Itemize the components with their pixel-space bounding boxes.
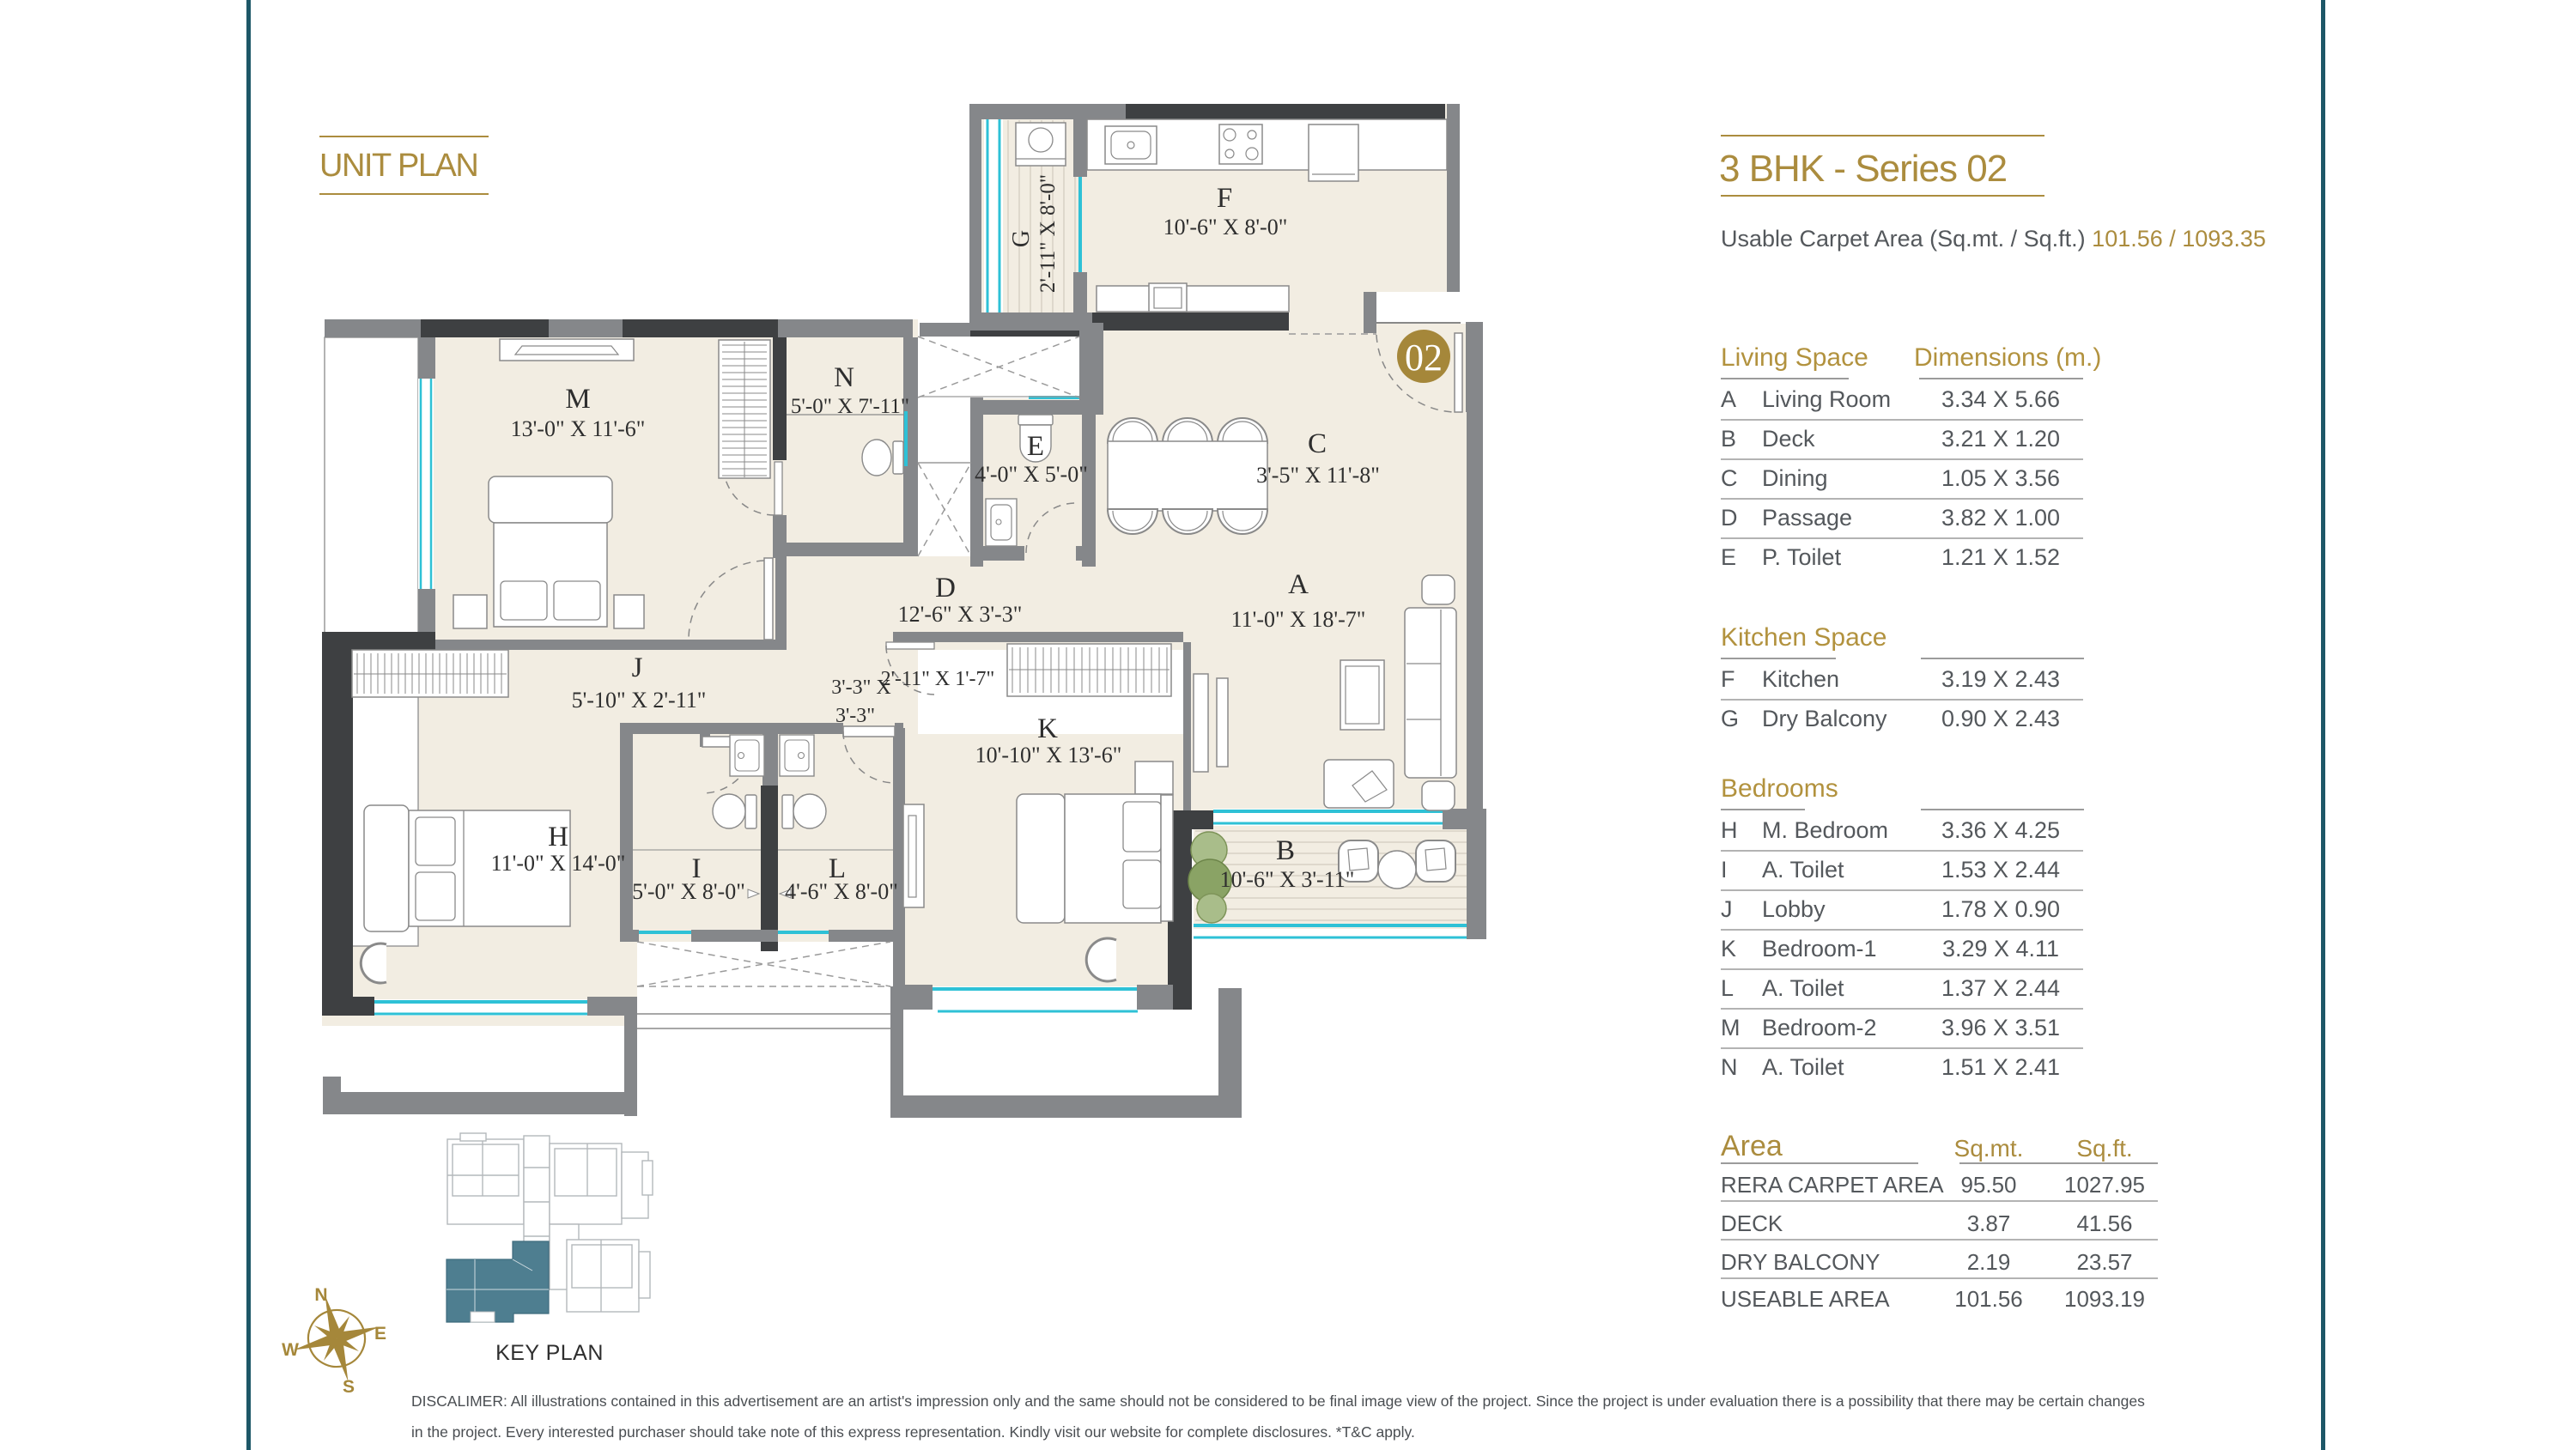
svg-text:02: 02 xyxy=(1405,337,1443,379)
svg-text:3'-3": 3'-3" xyxy=(835,705,875,727)
svg-text:J: J xyxy=(632,652,643,683)
svg-text:13'-0" X 11'-6": 13'-0" X 11'-6" xyxy=(511,416,646,441)
svg-text:G: G xyxy=(1008,230,1035,247)
svg-text:2'-11" X 8'-0": 2'-11" X 8'-0" xyxy=(1036,174,1060,293)
svg-text:12'-6" X 3'-3": 12'-6" X 3'-3" xyxy=(898,602,1023,627)
svg-text:3'-5" X 11'-8": 3'-5" X 11'-8" xyxy=(1256,463,1380,488)
svg-text:S: S xyxy=(343,1377,355,1397)
svg-text:N: N xyxy=(314,1285,327,1305)
svg-text:W: W xyxy=(282,1340,299,1360)
svg-text:N: N xyxy=(834,362,854,393)
svg-text:10'-10" X 13'-6": 10'-10" X 13'-6" xyxy=(975,743,1122,767)
svg-text:C: C xyxy=(1308,428,1327,459)
svg-text:B: B xyxy=(1276,835,1295,866)
svg-text:E: E xyxy=(1027,431,1044,462)
svg-text:10'-6" X 3'-11": 10'-6" X 3'-11" xyxy=(1220,867,1355,892)
svg-text:4'-0" X 5'-0": 4'-0" X 5'-0" xyxy=(975,462,1088,487)
svg-text:4'-6" X 8'-0": 4'-6" X 8'-0" xyxy=(785,879,898,904)
svg-text:11'-0" X 14'-0": 11'-0" X 14'-0" xyxy=(491,851,626,876)
svg-text:5'-10" X 2'-11": 5'-10" X 2'-11" xyxy=(572,688,707,713)
svg-text:5'-0" X 7'-11": 5'-0" X 7'-11" xyxy=(791,395,909,418)
svg-text:E: E xyxy=(374,1324,386,1344)
svg-text:F: F xyxy=(1217,183,1232,214)
svg-text:5'-0" X 8'-0": 5'-0" X 8'-0" xyxy=(632,879,745,904)
svg-text:2'-11" X 1'-7": 2'-11" X 1'-7" xyxy=(881,668,995,690)
svg-text:M: M xyxy=(565,384,590,415)
svg-text:A: A xyxy=(1288,569,1309,600)
svg-text:H: H xyxy=(548,822,568,852)
svg-text:D: D xyxy=(935,573,956,604)
svg-text:10'-6" X 8'-0": 10'-6" X 8'-0" xyxy=(1163,215,1288,240)
svg-text:K: K xyxy=(1037,713,1058,744)
svg-text:11'-0" X 18'-7": 11'-0" X 18'-7" xyxy=(1231,607,1366,632)
